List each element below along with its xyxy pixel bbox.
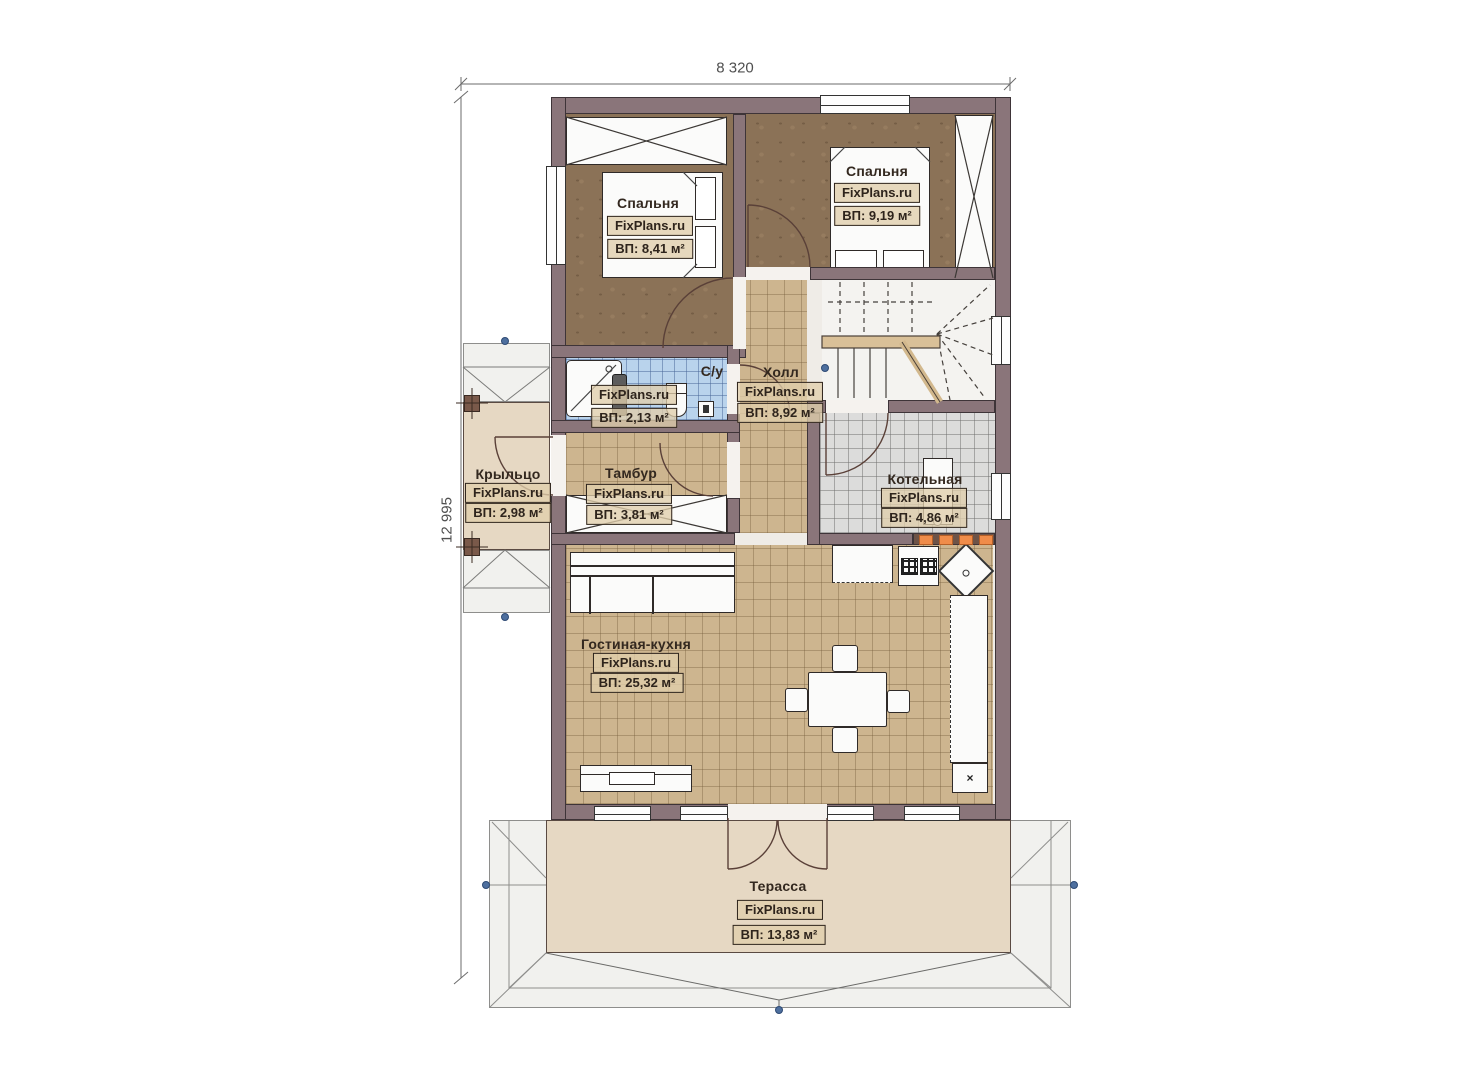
dining-chair [887,690,910,713]
wall-exterior-top [551,97,1010,114]
dining-chair [832,727,858,753]
bath-water-heater [698,401,714,417]
living-name: Гостиная-кухня [581,636,691,652]
living-window-2 [680,806,728,821]
bedroom1-name: Спальня [617,195,679,211]
dining-table [808,672,887,727]
porch-name: Крыльцо [475,466,540,482]
bedroom1-watermark: FixPlans.ru [607,216,693,236]
boiler-door-gap [826,400,888,413]
vent-block [919,535,933,545]
kitchen-end-cabinet: × [952,763,988,793]
porch-post [464,395,480,412]
terrace-area: ВП: 13,83 м² [733,925,826,945]
hall-watermark: FixPlans.ru [737,382,823,402]
dining-chair [785,688,808,712]
bedroom2-window [820,95,910,114]
bedroom2-name: Спальня [846,163,908,179]
boiler-area: ВП: 4,86 м² [881,508,967,528]
terrace-watermark: FixPlans.ru [737,900,823,920]
kitchen-counter [832,545,893,583]
living-area: ВП: 25,32 м² [591,673,684,693]
bedroom1-door-gap [733,277,746,349]
stairs-floor [822,280,995,400]
bedroom2-wardrobe [955,115,993,278]
tv-stand [580,765,692,792]
wall-bedroom1-bottom [551,345,746,358]
wall-kitchen-vent [913,533,995,545]
vent-block [959,535,973,545]
vestibule-watermark: FixPlans.ru [586,484,672,504]
boiler-name: Котельная [887,471,962,487]
wall-stairs-boiler-b [888,400,995,413]
floor-plan-canvas: × [0,0,1473,1080]
bathroom-area: ВП: 2,13 м² [591,408,677,428]
hall-name: Холл [763,364,799,380]
stove [898,546,939,586]
bedroom1-area: ВП: 8,41 м² [607,239,693,259]
terrace-name: Терасса [750,878,807,894]
wall-bedroom2-bottom [810,267,995,280]
vent-block [979,535,993,545]
living-window-3 [827,806,874,821]
bedroom2-door-gap [746,267,810,280]
vent-block [939,535,953,545]
bed-pillow [695,226,716,268]
stairs-window [991,316,1011,365]
wall-bedroom-divider [733,114,746,278]
bathroom-name: С/у [701,363,723,379]
entrance-door-gap [551,435,566,496]
terrace-door-gap [728,804,827,820]
stove-burner [920,558,937,575]
bedroom2-area: ВП: 9,19 м² [834,206,920,226]
boiler-window [991,473,1011,520]
wall-living-top-right [810,533,913,545]
porch-post [464,538,480,556]
bedroom1-wardrobe [566,117,727,165]
bathroom-watermark: FixPlans.ru [591,385,677,405]
dining-chair [832,645,858,672]
dimension-width-label: 8 320 [716,60,754,77]
sofa [570,552,735,613]
bedroom1-window [546,166,566,265]
vestibule-name: Тамбур [605,465,657,481]
porch-roof-top [463,343,550,402]
vestibule-area: ВП: 3,81 м² [586,505,672,525]
wall-vestibule-right [727,498,740,533]
kitchen-counter-right [950,595,988,763]
living-window-4 [904,806,960,821]
dimension-height-label: 12 995 [439,497,456,543]
porch-area: ВП: 2,98 м² [465,503,551,523]
vestibule-door-gap [727,442,740,498]
bed-pillow [695,177,716,220]
porch-watermark: FixPlans.ru [465,483,551,503]
wall-exterior-right [995,97,1011,820]
living-watermark: FixPlans.ru [593,653,679,673]
living-window-1 [594,806,651,821]
porch-roof-bottom [463,550,550,613]
boiler-watermark: FixPlans.ru [881,488,967,508]
hall-area: ВП: 8,92 м² [737,403,823,423]
stove-burner [901,558,918,575]
bedroom2-watermark: FixPlans.ru [834,183,920,203]
cabinet-x-marker: × [966,771,973,785]
wall-hall-boiler [807,413,820,545]
wall-living-top-left [551,533,735,545]
